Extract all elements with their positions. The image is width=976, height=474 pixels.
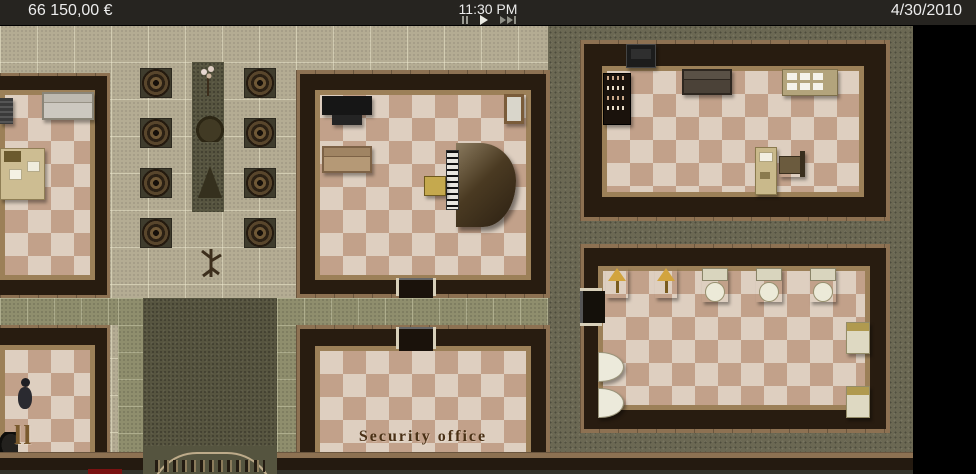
grand-piano[interactable] <box>446 143 516 227</box>
driveway[interactable] <box>143 298 277 460</box>
office-desk[interactable] <box>755 147 777 195</box>
fast-forward-icon[interactable] <box>500 16 516 24</box>
fountain[interactable] <box>244 168 276 198</box>
office-chair[interactable] <box>779 151 805 177</box>
void-area <box>913 25 976 474</box>
game-viewport[interactable]: ll Security office <box>0 0 976 474</box>
radiator[interactable] <box>0 98 13 124</box>
dark-sofa[interactable] <box>682 69 732 95</box>
door[interactable] <box>399 278 433 298</box>
flower-plant[interactable] <box>196 64 220 103</box>
top-bar: 66 150,00 € 11:30 PM 4/30/2010 <box>0 0 976 26</box>
tv-screen[interactable] <box>322 96 372 115</box>
wall-lamp[interactable] <box>606 268 628 298</box>
door-frame <box>433 327 436 349</box>
toilet[interactable] <box>702 268 728 302</box>
piano-bench[interactable] <box>424 176 446 196</box>
bottom-edge <box>0 470 913 474</box>
door[interactable] <box>399 327 433 351</box>
fountain[interactable] <box>140 168 172 198</box>
bookshelf[interactable] <box>603 73 631 125</box>
play-icon[interactable] <box>480 15 488 25</box>
tan-sofa[interactable] <box>322 146 372 173</box>
door-frame <box>433 278 436 296</box>
pause-icon[interactable] <box>462 16 468 24</box>
red-carpet[interactable] <box>88 469 122 474</box>
fountain[interactable] <box>140 118 172 148</box>
fountain[interactable] <box>140 218 172 248</box>
fountain[interactable] <box>244 218 276 248</box>
door[interactable] <box>580 291 605 323</box>
mirror[interactable] <box>504 94 524 124</box>
toilet[interactable] <box>756 268 782 302</box>
door-frame <box>580 323 602 326</box>
conifer-tree[interactable] <box>198 166 222 198</box>
fountain[interactable] <box>140 68 172 98</box>
dead-tree[interactable] <box>198 246 224 285</box>
room-label-hall-partial: ll <box>14 420 33 451</box>
time-controls <box>462 15 532 25</box>
hedge-strip[interactable] <box>118 298 143 458</box>
wall-screen[interactable] <box>626 44 656 68</box>
entrance-gate[interactable] <box>143 446 277 474</box>
guest[interactable] <box>18 378 32 410</box>
perimeter-wall <box>0 458 913 470</box>
fountain[interactable] <box>244 68 276 98</box>
garden-path[interactable] <box>277 298 548 325</box>
reception-desk[interactable] <box>0 148 45 200</box>
bush[interactable] <box>196 116 224 142</box>
wall-lamp[interactable] <box>655 268 677 298</box>
room-label-security-office: Security office <box>315 428 531 446</box>
white-sofa[interactable] <box>42 92 94 120</box>
date-display: 4/30/2010 <box>891 2 962 20</box>
urinal[interactable] <box>846 386 870 418</box>
key-rack[interactable] <box>782 69 838 96</box>
tv-stand[interactable] <box>332 115 362 125</box>
toilet[interactable] <box>810 268 836 302</box>
fountain[interactable] <box>244 118 276 148</box>
urinal[interactable] <box>846 322 870 354</box>
